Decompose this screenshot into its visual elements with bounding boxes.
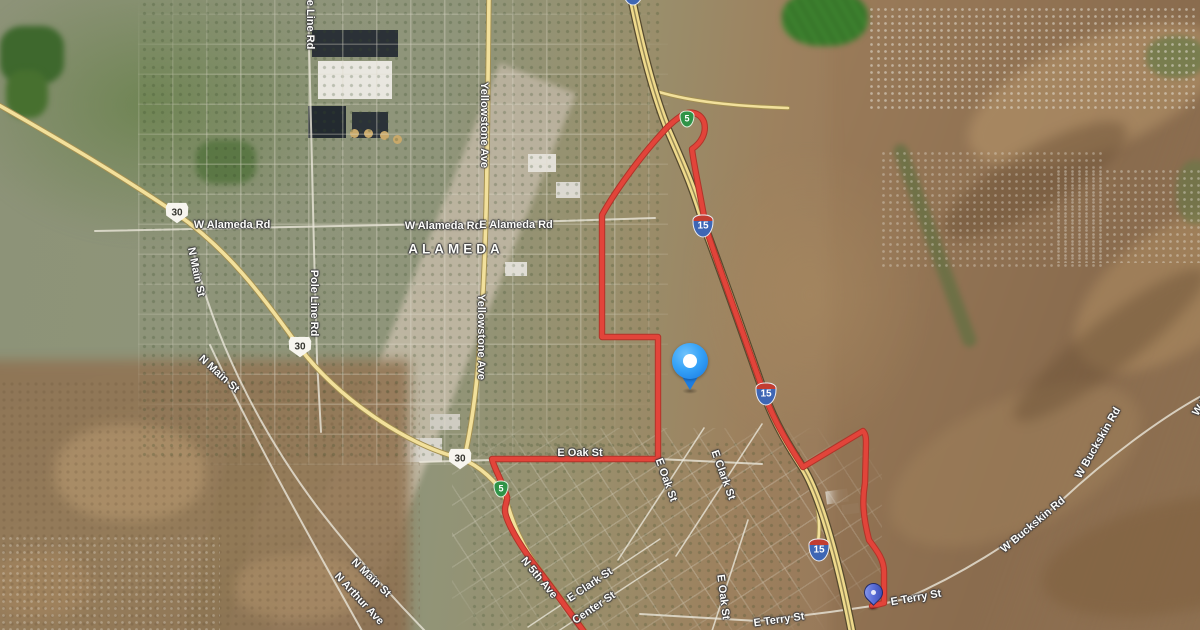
shield-number: 30 <box>454 454 465 464</box>
street-label: W Alameda Rd <box>194 219 271 231</box>
pin-balloon <box>672 343 708 379</box>
shield-number: 5 <box>684 115 689 124</box>
shield-number: 5 <box>498 485 503 494</box>
pin-shadow <box>867 606 879 611</box>
minor-roads <box>95 0 1200 630</box>
street-label: Pole Line Rd <box>308 270 320 337</box>
street-label: Yellowstone Ave <box>478 82 490 168</box>
shield-number: 15 <box>813 545 824 555</box>
street-label: E Oak St <box>557 447 602 459</box>
street-label: Pole Line Rd <box>304 0 316 49</box>
shield-number: 15 <box>697 221 708 231</box>
shield-number: 30 <box>294 342 305 352</box>
pin-highlight <box>871 590 876 595</box>
district-label-alameda: ALAMEDA <box>408 242 504 257</box>
highway-fill <box>0 0 819 630</box>
highway-casing <box>0 0 819 630</box>
shield-number: 30 <box>171 208 182 218</box>
shield-number: 15 <box>760 389 771 399</box>
pin-center-dot <box>683 354 697 368</box>
satellite-map-canvas[interactable]: 30 30 30 15 15 15 15 5 5 W Alameda Rd W … <box>0 0 1200 630</box>
street-label: Yellowstone Ave <box>475 294 487 380</box>
street-label: W Alameda Rd <box>405 220 482 232</box>
street-label: E Alameda Rd <box>479 219 553 231</box>
